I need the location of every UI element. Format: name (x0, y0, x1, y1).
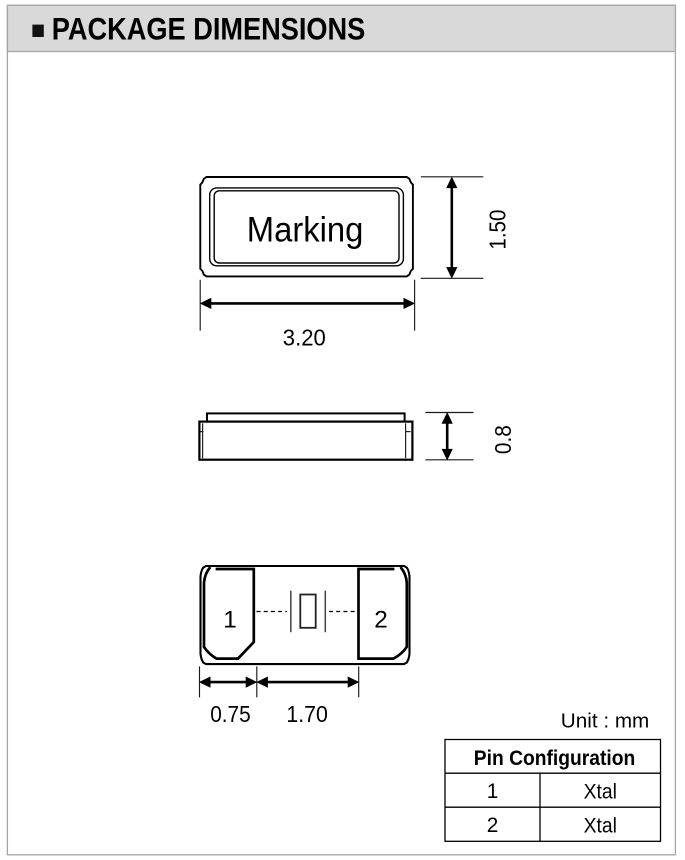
svg-text:1.50: 1.50 (485, 210, 511, 250)
svg-text:Xtal: Xtal (584, 815, 617, 838)
svg-text:Pin Configuration: Pin Configuration (474, 747, 636, 770)
svg-text:3.20: 3.20 (283, 325, 326, 351)
svg-text:Unit : mm: Unit : mm (561, 710, 650, 732)
svg-text:1: 1 (223, 607, 237, 634)
svg-text:2: 2 (487, 814, 499, 837)
svg-text:0.75: 0.75 (210, 701, 251, 727)
svg-text:0.8: 0.8 (490, 425, 516, 454)
svg-text:2: 2 (374, 607, 388, 634)
svg-text:1: 1 (487, 780, 499, 803)
svg-text:1.70: 1.70 (286, 701, 328, 727)
svg-text:Xtal: Xtal (584, 781, 617, 804)
svg-text:PACKAGE DIMENSIONS: PACKAGE DIMENSIONS (52, 11, 366, 46)
svg-text:Marking: Marking (247, 210, 364, 250)
